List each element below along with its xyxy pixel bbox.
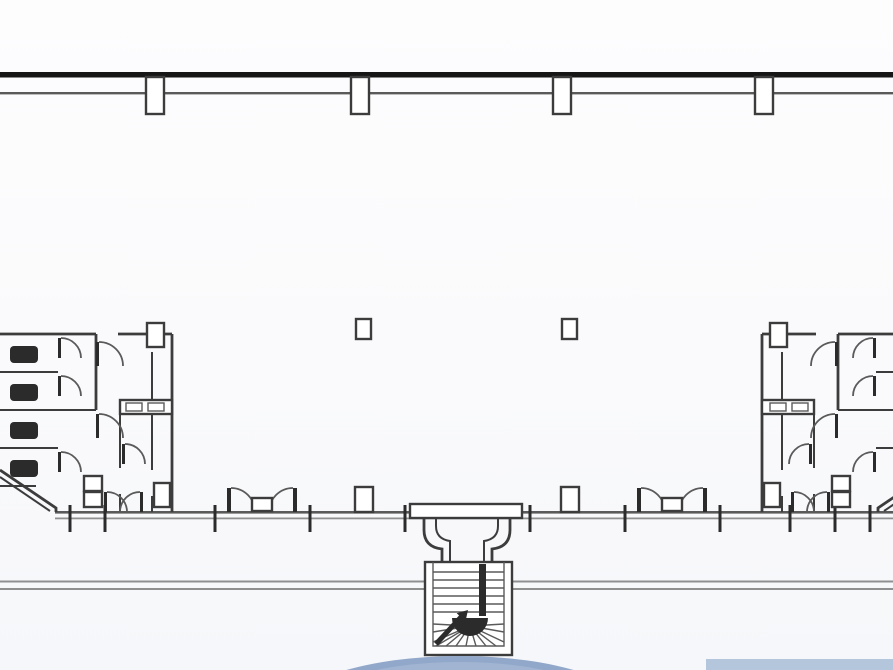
sink-counter (120, 400, 172, 414)
mullion-tab (553, 77, 571, 114)
core-entry-doors (104, 492, 143, 512)
diagonal-wall-inner (0, 477, 50, 511)
door-center-stop (662, 498, 682, 511)
floor-plan-drawing (0, 0, 893, 670)
vestibule-wall-right-outer (492, 518, 510, 564)
bottom-blue-graphics (288, 656, 893, 670)
door-leaf (637, 488, 641, 512)
door-leaf (293, 488, 297, 512)
mullion-tab (146, 77, 164, 114)
wall-pilaster-tab (561, 487, 579, 512)
column (356, 319, 371, 339)
vestibule-header-bar (410, 504, 522, 518)
double-door-left (227, 488, 297, 512)
vestibule-wall-left-outer (424, 518, 442, 564)
door-leaf (703, 488, 707, 512)
toilet-fixtures (10, 346, 38, 477)
stair-center-stringer (479, 564, 486, 616)
mullion-tab (351, 77, 369, 114)
double-door-right (637, 488, 707, 512)
wall-pilaster-tab (355, 487, 373, 512)
door-center-stop (252, 498, 272, 511)
corridor-line-right (511, 582, 893, 590)
entry-vestibule (410, 504, 522, 564)
door-leaf (227, 488, 231, 512)
stall-doors (58, 338, 81, 472)
right-restroom-core (762, 323, 893, 512)
mullion-tab (755, 77, 773, 114)
blue-ellipse-highlight (300, 662, 620, 670)
core-wall-end-tab (154, 483, 170, 507)
blue-band-crop (706, 659, 893, 670)
structural-columns (356, 319, 577, 339)
service-boxes (84, 476, 102, 507)
floor-plan-canvas (0, 0, 893, 670)
top-exterior-wall (0, 72, 893, 114)
left-restroom-core (0, 323, 172, 512)
winding-stair (425, 562, 512, 655)
corridor-line-left (0, 582, 426, 590)
column (562, 319, 577, 339)
core-mullion-tab (147, 323, 164, 347)
